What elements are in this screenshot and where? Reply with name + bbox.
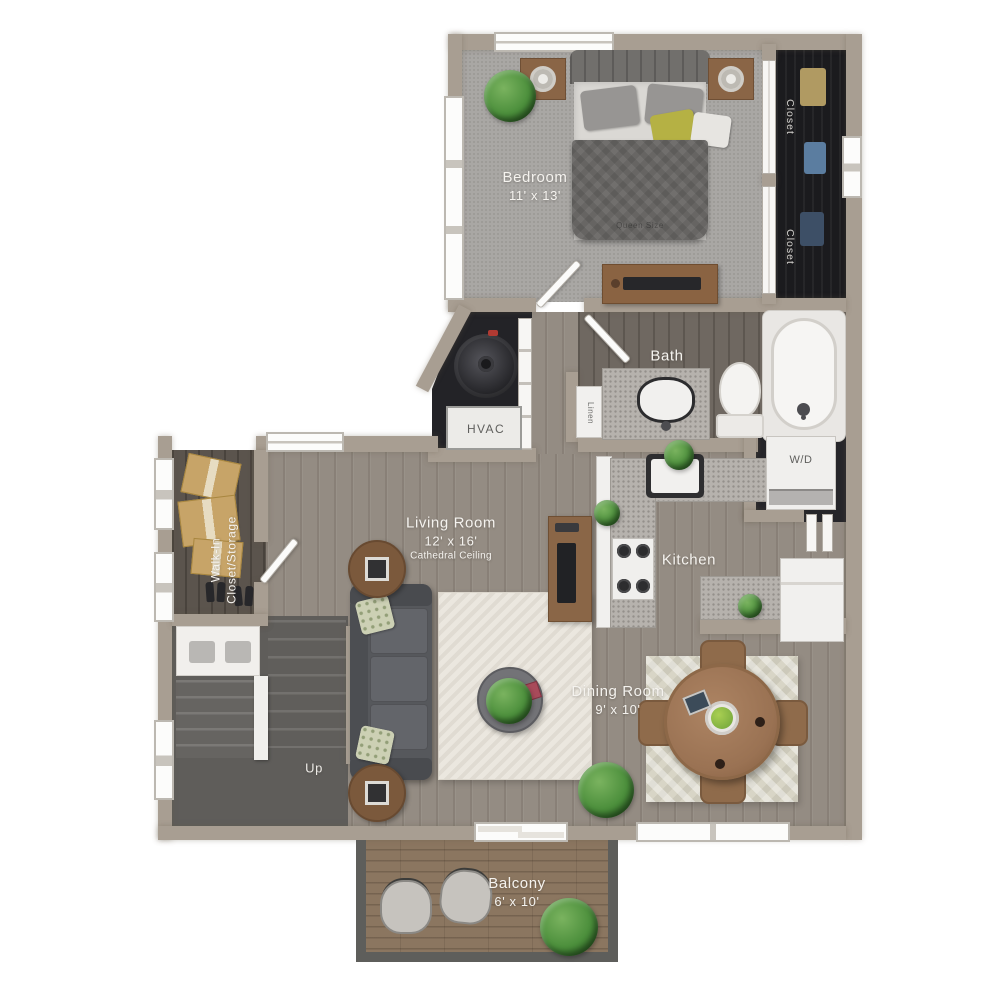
- wall-walkin-south: [172, 614, 268, 626]
- balcony-name: Balcony: [488, 874, 546, 894]
- tv-console: [548, 516, 592, 622]
- bed-headboard: [570, 50, 710, 84]
- shoes: [244, 586, 253, 607]
- hanging-clothes: [800, 212, 824, 246]
- washer-dryer-unit: [766, 436, 836, 510]
- dining-table: [664, 664, 780, 780]
- closet-sliding-door-lower: [762, 186, 776, 294]
- walkin-line2: Closet/Storage: [224, 516, 240, 604]
- kitchen-bar-counter: [780, 558, 844, 642]
- closet-bench: [176, 626, 260, 676]
- toilet-tank: [716, 414, 764, 438]
- media-player: [555, 523, 579, 532]
- kitchen-plant-1: [664, 440, 694, 470]
- wall-walkin-east-upper: [254, 450, 268, 542]
- heater-valve: [488, 330, 498, 336]
- table-lamp: [365, 557, 389, 581]
- hanging-clothes: [804, 142, 826, 174]
- kitchen-label: Kitchen: [662, 550, 716, 570]
- bench-cushion: [189, 641, 215, 663]
- dining-room-dims: 9' x 10': [571, 701, 664, 718]
- living-dining-plant: [578, 762, 634, 818]
- dining-room-label: Dining Room 9' x 10': [571, 682, 664, 718]
- bedroom-dresser: [602, 264, 718, 304]
- slider-pane: [518, 832, 564, 838]
- table-dot: [715, 759, 725, 769]
- kitchen-plant-2: [594, 500, 620, 526]
- throw-pillow: [355, 725, 395, 765]
- window-walkin-2: [154, 552, 174, 622]
- bedroom-plant: [484, 70, 536, 122]
- living-room-note: Cathedral Ceiling: [406, 550, 496, 563]
- burner: [617, 544, 631, 558]
- window-stairs: [154, 720, 174, 800]
- wall-laundry-bottom: [744, 510, 804, 522]
- balcony-wall-left: [356, 840, 366, 962]
- sink: [637, 377, 695, 423]
- hvac-unit-box: HVAC: [446, 406, 522, 450]
- sofa-cushion: [370, 656, 428, 702]
- balcony-plant: [540, 898, 598, 956]
- closet-lower-label: Closet: [782, 229, 796, 265]
- wall-hvac-south: [428, 448, 536, 462]
- bench-cushion: [225, 641, 251, 663]
- dresser-knob: [611, 279, 620, 288]
- stairs-divider-wall: [254, 676, 268, 760]
- bed-duvet: Queen Size: [572, 140, 708, 240]
- closet-sliding-door-upper: [762, 60, 776, 174]
- balcony-dims: 6' x 10': [488, 893, 546, 910]
- toilet: [718, 362, 762, 442]
- burner: [636, 579, 650, 593]
- bedroom-dims: 11' x 13': [502, 187, 567, 204]
- window-bedroom-left: [444, 96, 464, 300]
- sink-faucet: [661, 421, 671, 431]
- coffee-table-plant: [486, 678, 532, 724]
- toilet-bowl: [719, 362, 761, 418]
- bedroom-label: Bedroom 11' x 13': [502, 168, 567, 204]
- hvac-label: HVAC: [467, 422, 505, 438]
- linen-label: Linen: [585, 402, 595, 424]
- bathtub-surround: [762, 310, 846, 442]
- side-table-top: [348, 540, 406, 598]
- walkin-line1: Walk-In: [208, 516, 224, 604]
- walkin-label: Walk-In Closet/Storage: [208, 516, 239, 604]
- kitchen-plant-3: [738, 594, 762, 618]
- window-living-top: [266, 432, 344, 452]
- bath-label: Bath: [650, 346, 683, 366]
- burner: [636, 544, 650, 558]
- fruit: [711, 707, 733, 729]
- stove: [612, 538, 654, 600]
- stairs-flight-lower: [176, 680, 254, 758]
- closet-jamb-middle: [762, 174, 776, 186]
- burner: [617, 579, 631, 593]
- window-bedroom-top: [494, 32, 614, 52]
- laundry-label: W/D: [790, 453, 813, 467]
- table-dot: [755, 717, 765, 727]
- washer-drawer: [769, 489, 833, 505]
- sofa: [350, 584, 432, 780]
- stairs-flight-up: [268, 620, 346, 748]
- queen-size-label: Queen Size: [616, 221, 664, 230]
- table-lamp: [365, 781, 389, 805]
- closet-jamb-bottom: [762, 294, 776, 304]
- tv-screen: [557, 543, 576, 603]
- slider-pane: [478, 826, 522, 832]
- floor-plan: Queen Size Linen HVAC: [0, 0, 1000, 1000]
- living-room-name: Living Room: [406, 513, 496, 533]
- bedroom-name: Bedroom: [502, 168, 567, 188]
- heater-cap: [478, 356, 494, 372]
- living-room-dims: 12' x 16': [406, 533, 496, 550]
- window-walkin-1: [154, 458, 174, 530]
- stairs-up-label: Up: [305, 761, 323, 778]
- water-heater: [454, 334, 518, 398]
- side-table-bottom: [348, 764, 406, 822]
- closet-upper-label: Closet: [782, 99, 796, 135]
- nightstand-right: [708, 58, 754, 100]
- balcony-label: Balcony 6' x 10': [488, 874, 546, 910]
- dresser-tv: [623, 277, 701, 290]
- balcony-sliding-door: [474, 822, 568, 842]
- table-lamp: [718, 66, 744, 92]
- linen-closet: Linen: [576, 386, 602, 438]
- closet-jamb-top: [762, 44, 776, 60]
- laundry-door-leaf-1: [806, 514, 817, 552]
- dining-room-name: Dining Room: [571, 682, 664, 702]
- bath-vanity: [602, 368, 710, 440]
- bed-pillow: [580, 85, 640, 132]
- balcony-wall-right: [608, 840, 618, 962]
- laundry-door-leaf-2: [822, 514, 833, 552]
- balcony-chair: [380, 880, 432, 934]
- window-dining: [636, 822, 790, 842]
- tub-faucet: [797, 403, 810, 416]
- living-room-label: Living Room 12' x 16' Cathedral Ceiling: [406, 513, 496, 562]
- window-right: [842, 136, 862, 198]
- hanging-clothes: [800, 68, 826, 106]
